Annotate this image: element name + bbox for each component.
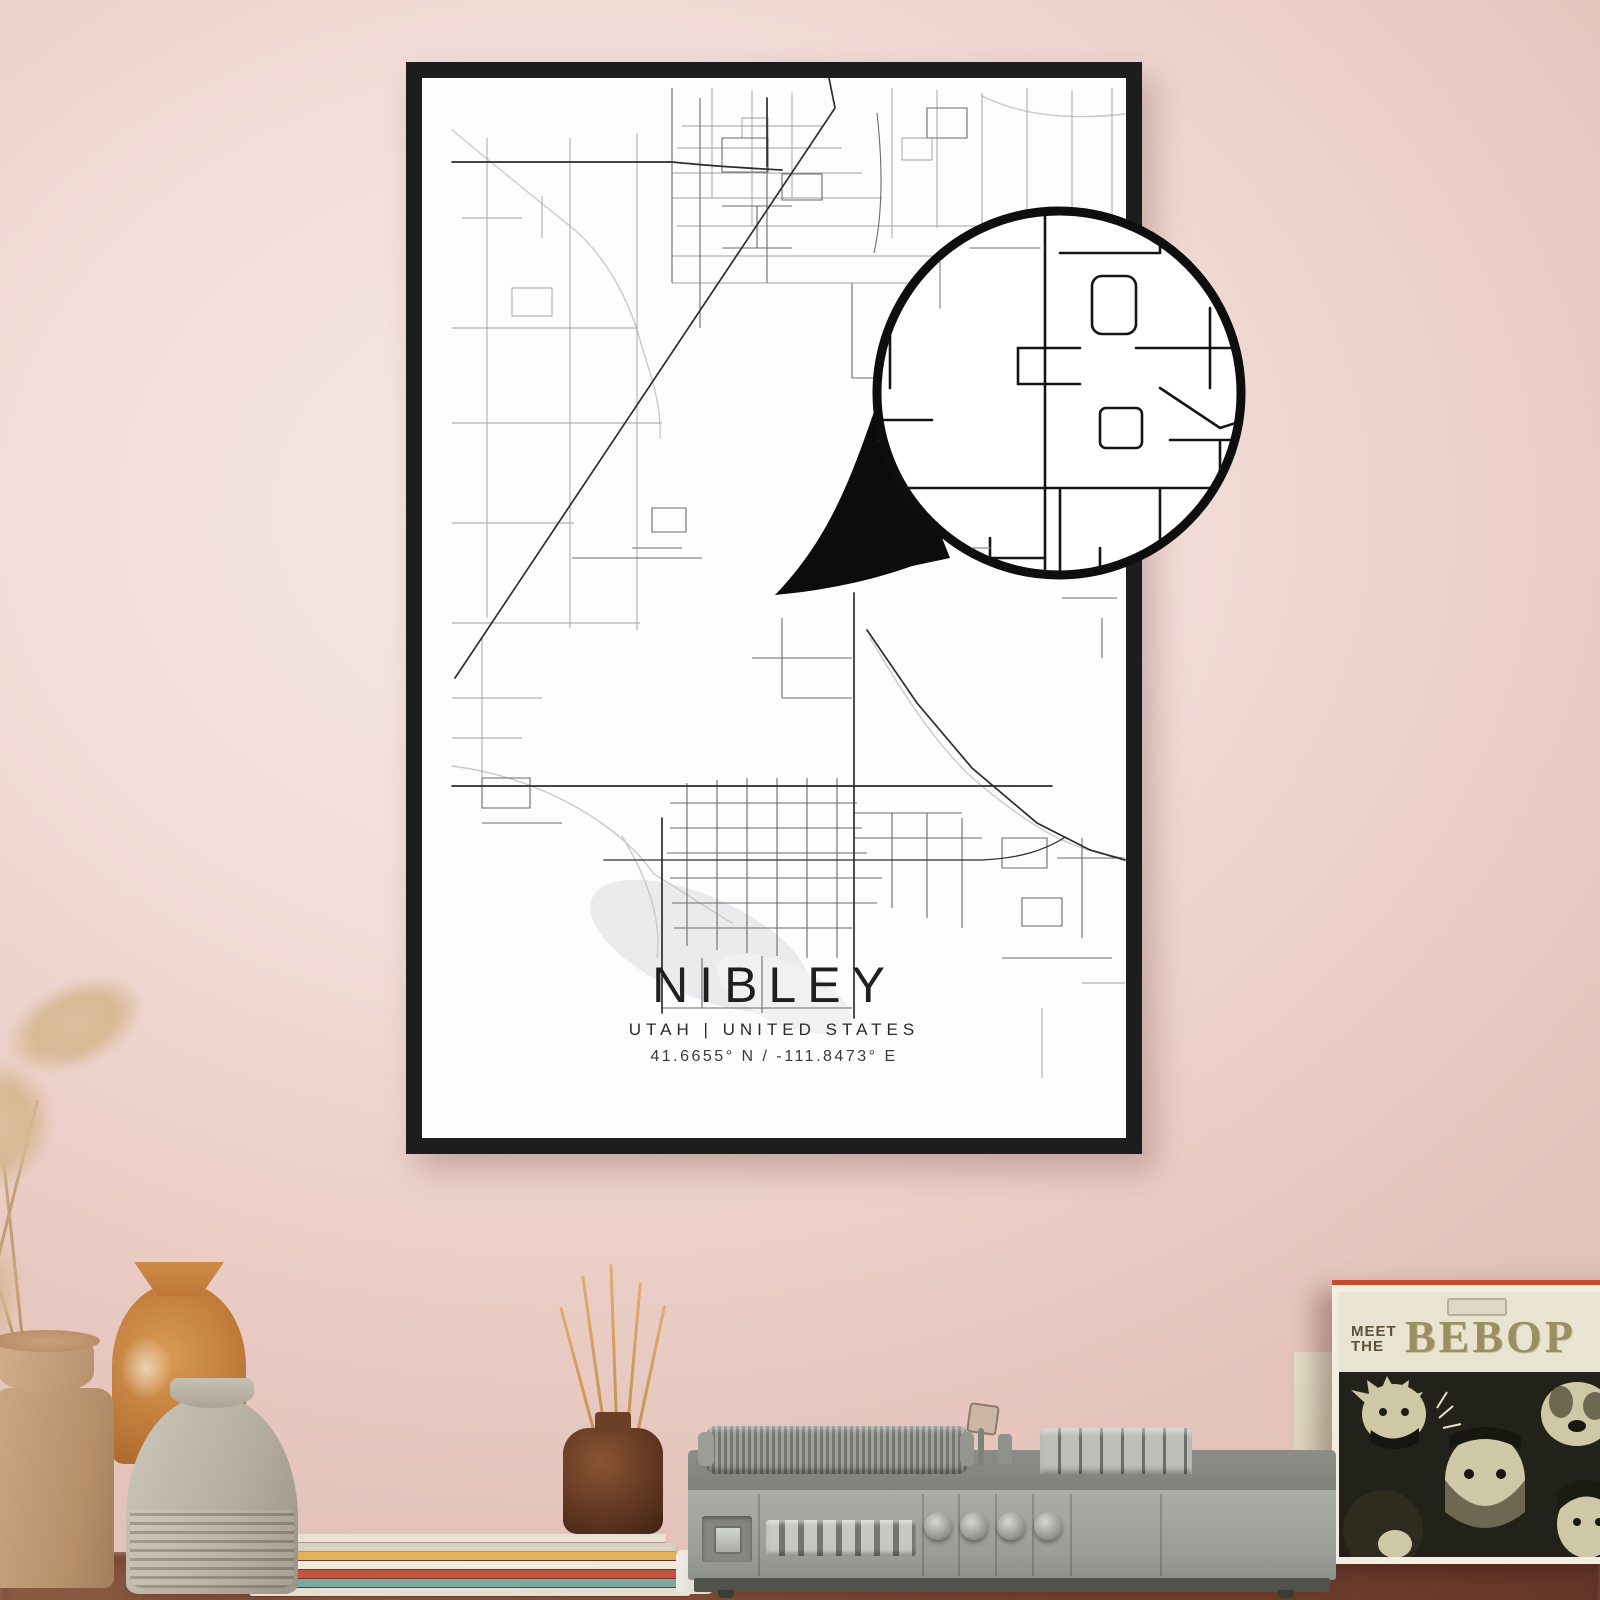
player-foot	[1278, 1590, 1294, 1598]
player-foot	[718, 1590, 734, 1598]
panel-divider	[922, 1494, 924, 1576]
panel-divider	[1070, 1494, 1072, 1576]
bottle-neck	[595, 1412, 631, 1432]
knob	[997, 1512, 1025, 1540]
album-art	[1339, 1372, 1600, 1557]
knob	[924, 1512, 952, 1540]
panel-divider	[1032, 1494, 1034, 1576]
magazine-stack	[226, 1530, 712, 1600]
vase-amber-glaze	[120, 1336, 172, 1400]
magazine	[250, 1588, 690, 1596]
album-title-small: MEET THE	[1351, 1324, 1397, 1354]
tonearm	[954, 1404, 1020, 1474]
magazine	[280, 1552, 690, 1560]
knob	[1034, 1512, 1062, 1540]
preset-buttons	[766, 1520, 916, 1556]
vase-gray-ribs	[130, 1510, 294, 1588]
panel-divider	[995, 1494, 997, 1576]
panel-divider	[758, 1494, 760, 1576]
room-scene: NIBLEY UTAH | UNITED STATES 41.6655° N /…	[0, 0, 1600, 1600]
poster-subtitle: UTAH | UNITED STATES	[422, 1020, 1126, 1040]
tonearm-post	[998, 1434, 1012, 1464]
magazine	[266, 1534, 666, 1542]
player-base	[694, 1578, 1330, 1592]
magazine	[246, 1543, 676, 1551]
tonearm-shaft	[978, 1428, 984, 1466]
player-front-panel	[688, 1490, 1336, 1580]
magazine	[260, 1570, 680, 1578]
vase-gray-neck	[170, 1378, 254, 1408]
album-title-main: BEBOP	[1405, 1310, 1576, 1363]
reed-diffuser-bottle	[563, 1428, 663, 1534]
vase-amber-rim	[134, 1262, 224, 1296]
panel-divider	[1160, 1494, 1162, 1576]
album-title-band: MEET THE BEBOP	[1339, 1292, 1600, 1372]
poster-title: NIBLEY	[422, 956, 1126, 1014]
control-keys	[1040, 1428, 1192, 1474]
record-player	[688, 1412, 1336, 1598]
magazine	[236, 1561, 686, 1569]
power-button	[702, 1516, 752, 1562]
album-cover-bebop: MEET THE BEBOP	[1332, 1280, 1600, 1564]
knob	[960, 1512, 988, 1540]
magnifier-callout	[740, 158, 1300, 644]
album-accent-strip	[1332, 1280, 1600, 1285]
panel-divider	[958, 1494, 960, 1576]
poster-coordinates: 41.6655° N / -111.8473° E	[422, 1048, 1126, 1066]
vase-tan	[0, 1388, 114, 1588]
turntable-platter	[706, 1426, 968, 1474]
